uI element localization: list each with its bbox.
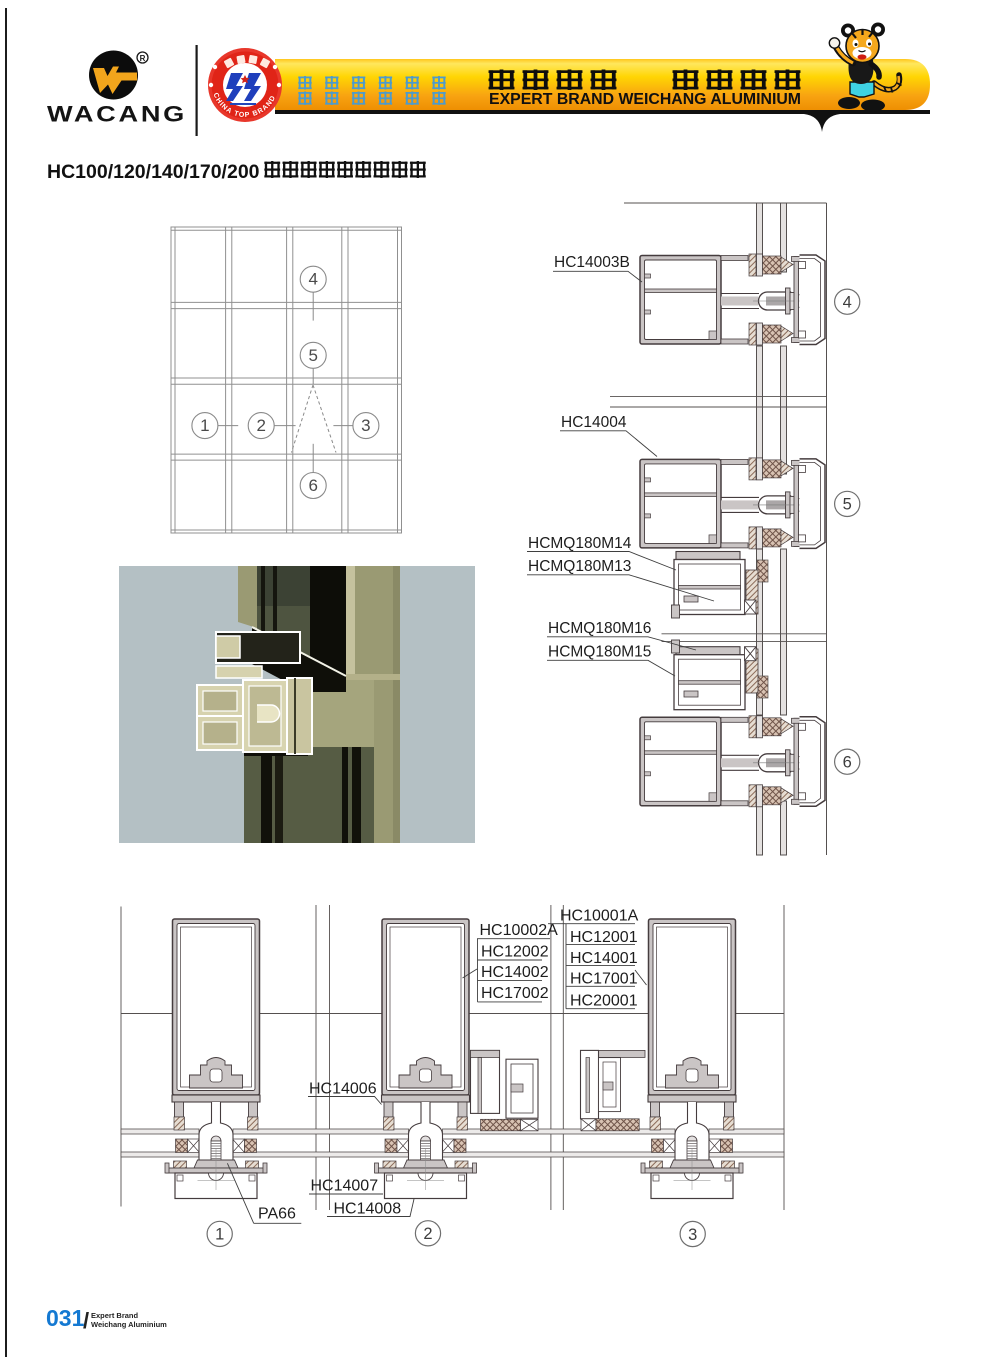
svg-text:/: /	[83, 1308, 89, 1333]
svg-text:HC17002: HC17002	[481, 985, 549, 1002]
svg-text:3: 3	[361, 416, 370, 435]
svg-text:1: 1	[215, 1226, 224, 1244]
svg-text:6: 6	[308, 476, 317, 495]
svg-text:Weichang Aluminium: Weichang Aluminium	[91, 1320, 167, 1329]
svg-text:5: 5	[308, 346, 317, 365]
svg-text:2: 2	[423, 1225, 432, 1243]
svg-text:HCMQ180M15: HCMQ180M15	[548, 644, 651, 661]
svg-text:HCMQ180M16: HCMQ180M16	[548, 620, 651, 637]
svg-text:2: 2	[256, 416, 265, 435]
svg-text:6: 6	[843, 754, 852, 772]
svg-text:HC10002A: HC10002A	[480, 922, 559, 939]
svg-text:HC14003B: HC14003B	[554, 254, 630, 271]
svg-text:HCMQ180M13: HCMQ180M13	[528, 558, 631, 575]
svg-text:PA66: PA66	[258, 1206, 296, 1223]
svg-text:HC12001: HC12001	[570, 929, 638, 946]
svg-text:HC14008: HC14008	[334, 1201, 402, 1218]
svg-text:Expert Brand: Expert Brand	[91, 1311, 139, 1320]
svg-text:WACANG: WACANG	[47, 102, 187, 127]
svg-text:HC14001: HC14001	[570, 950, 638, 967]
svg-text:HC14006: HC14006	[309, 1081, 377, 1098]
svg-text:HC10001A: HC10001A	[560, 908, 639, 925]
svg-text:HC14007: HC14007	[311, 1178, 379, 1195]
svg-text:HCMQ180M14: HCMQ180M14	[528, 535, 632, 552]
svg-text:HC20001: HC20001	[570, 993, 638, 1010]
svg-text:HC12002: HC12002	[481, 944, 549, 961]
svg-text:3: 3	[688, 1226, 697, 1244]
svg-text:1: 1	[200, 416, 209, 435]
svg-text:HC14004: HC14004	[561, 414, 627, 431]
svg-text:4: 4	[308, 270, 317, 289]
svg-text:HC17001: HC17001	[570, 971, 638, 988]
svg-text:031: 031	[46, 1305, 85, 1331]
svg-text:4: 4	[843, 294, 852, 312]
svg-text:5: 5	[843, 496, 852, 514]
svg-text:R: R	[140, 54, 146, 63]
svg-text:HC100/120/140/170/200: HC100/120/140/170/200	[47, 161, 260, 183]
svg-text:HC14002: HC14002	[481, 964, 549, 981]
svg-text:EXPERT BRAND WEICHANG ALUMINIU: EXPERT BRAND WEICHANG ALUMINIUM	[489, 91, 801, 108]
